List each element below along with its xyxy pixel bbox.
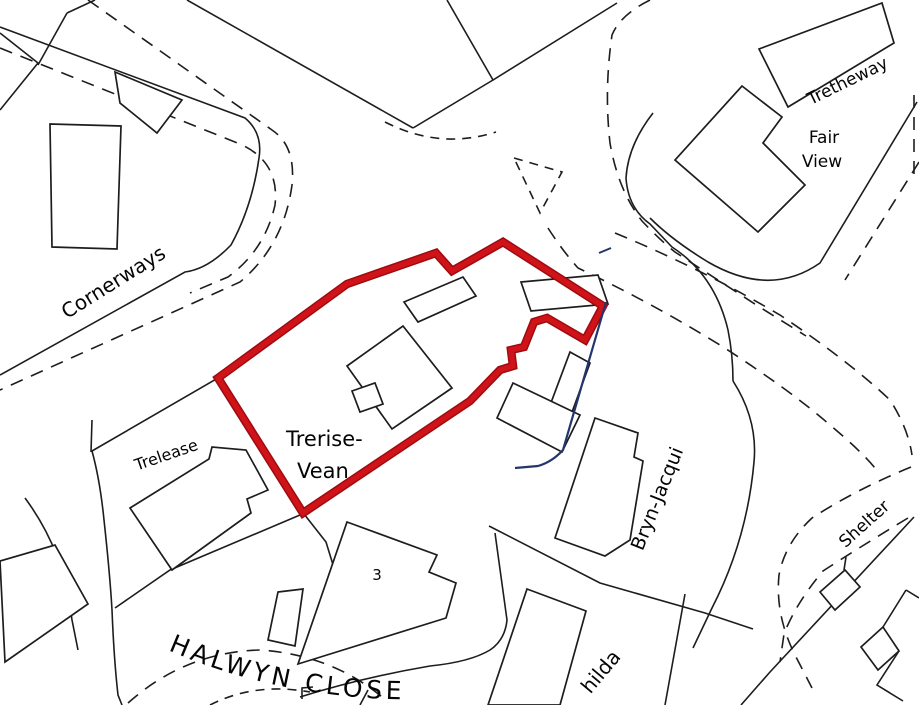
buildings (0, 3, 919, 705)
label-trerise-vean-line1: Trerise- (285, 427, 363, 451)
corner-lines-topleft (0, 0, 95, 110)
label-hilda-partial: hilda (576, 645, 626, 698)
junction-kerbs-top (413, 0, 617, 128)
building-trerise-house (347, 326, 452, 429)
building-cornerways-outbuilding (115, 72, 182, 133)
label-fair-view-line2: View (802, 152, 842, 172)
label-fair-view-line1: Fair (809, 128, 839, 148)
shelter-hut-tick (844, 557, 846, 570)
shelter-road-diagonal (741, 517, 914, 705)
traffic-island-dashed-triangle (514, 158, 562, 213)
building-fair-view (675, 86, 805, 232)
label-trelease: Trelease (131, 435, 200, 475)
parcel-blue-tick (599, 248, 611, 253)
building-number-3 (298, 522, 456, 664)
building-bottom-right-annex (861, 627, 899, 670)
building-mathilda (488, 589, 586, 705)
trelease-plot-line (91, 378, 218, 452)
label-plot-number-3: 3 (372, 566, 382, 584)
map-canvas: Tretheway Fair View Cornerways Trerise- … (0, 0, 919, 705)
road-dashed-right-edge (845, 162, 919, 280)
road-dashed-topleft-1 (0, 0, 293, 390)
plot-line-mathilda-east (665, 594, 685, 705)
building-small-garage (268, 589, 303, 646)
building-cornerways-house (50, 124, 121, 249)
driveway-east-edge (92, 451, 122, 705)
building-shelter-hut (820, 570, 860, 610)
road-dashed-east-upper (615, 233, 912, 455)
building-left-edge (0, 545, 88, 662)
site-plan-map: Tretheway Fair View Cornerways Trerise- … (0, 0, 919, 705)
label-trerise-vean-line2: Vean (297, 459, 349, 483)
building-trerise-outbuilding-north (404, 277, 476, 322)
road-dashed-junction-arc (385, 122, 496, 139)
brynjacqui-plot-curve (693, 381, 755, 648)
